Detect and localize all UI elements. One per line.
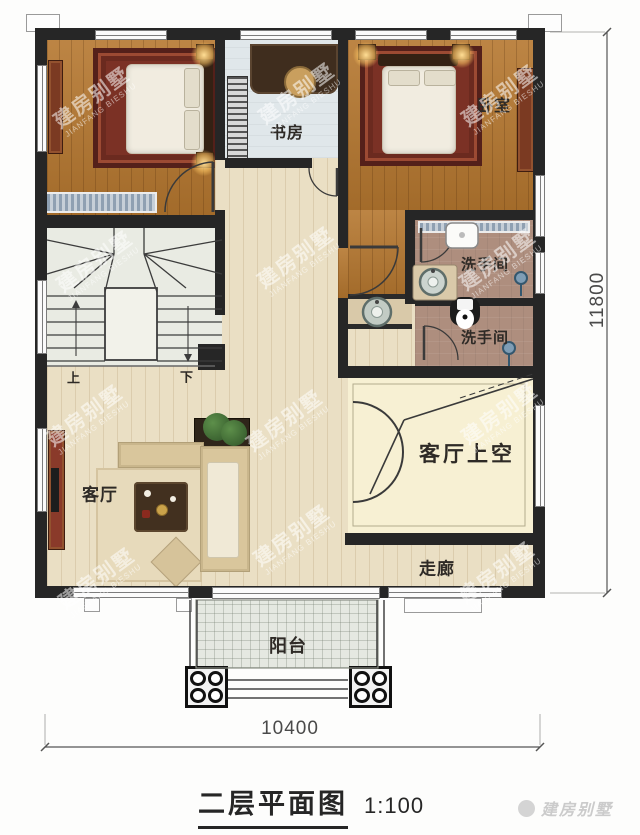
bedroom-right-wardrobe: [517, 68, 534, 172]
bedroom-vestibule-floor: [348, 210, 405, 298]
room-label-bedroom: 卧室: [477, 92, 511, 116]
room-label-corridor: 走廊: [419, 555, 455, 580]
window: [355, 30, 427, 40]
room-label-washroom-upper: 洗手间: [461, 254, 509, 275]
dimension-vertical: 11800: [587, 272, 609, 328]
wall: [215, 210, 225, 315]
wall: [405, 210, 533, 220]
sofa-seat: [207, 462, 239, 558]
wall: [47, 215, 225, 228]
wall: [338, 168, 348, 248]
room-label-living: 客厅: [82, 481, 118, 506]
corner-watermark-text: 建房别墅: [541, 796, 613, 820]
bedroom-left-door-gap: [215, 160, 225, 210]
watermark-logo-icon: [518, 800, 535, 817]
window: [73, 587, 189, 598]
wall: [225, 158, 312, 168]
cup-icon: [144, 490, 151, 497]
bedroom-left-tv-cabinet: [48, 60, 63, 154]
wall: [345, 533, 533, 545]
balcony-column-base: [349, 666, 392, 708]
window: [240, 30, 332, 40]
window: [95, 30, 167, 40]
wall: [415, 298, 533, 306]
window: [37, 280, 47, 354]
window: [535, 405, 545, 507]
sofa-chaise: [118, 442, 204, 468]
tv-screen: [51, 468, 59, 512]
study-chair: [284, 66, 316, 98]
room-label-living-void: 客厅上空: [419, 438, 515, 468]
window: [37, 65, 47, 152]
bedroom-left-pillow: [184, 110, 200, 150]
corner-watermark: 建房别墅: [518, 796, 613, 820]
lamp-glow: [191, 150, 217, 176]
bedroom-door-gap: [338, 248, 348, 298]
bedroom-right-pillow: [388, 70, 420, 86]
plant-icon: [221, 420, 247, 446]
wall: [345, 366, 533, 378]
bedroom-left-closet: [45, 192, 157, 213]
basin-alcove: [348, 294, 412, 329]
window: [388, 587, 502, 598]
title-scale: 1:100: [364, 793, 424, 819]
window: [450, 30, 517, 40]
title-text: 二层平面图: [198, 782, 348, 829]
window: [535, 175, 545, 237]
floor-plan: 书房 卧室 洗手间 洗手间 客厅 客厅上空 走廊 阳台 上 下 10400 11…: [0, 0, 640, 835]
bedroom-right-pillow: [424, 70, 456, 86]
dimension-horizontal: 10400: [261, 718, 319, 740]
bedroom-left-pillow: [184, 68, 200, 108]
entry-step: [404, 598, 482, 613]
table-decor-red: [142, 510, 150, 518]
table-decor: [156, 504, 168, 516]
balcony-column-base: [185, 666, 228, 708]
stairs-up-label: 上: [67, 368, 81, 387]
window: [37, 428, 47, 512]
lamp-glow: [353, 42, 379, 68]
wall: [533, 28, 545, 598]
stairs-down-label: 下: [180, 367, 194, 386]
pilaster-cap: [176, 598, 192, 612]
lamp-glow: [191, 42, 217, 68]
coffee-table: [134, 482, 188, 532]
drawing-title: 二层平面图 1:100: [198, 782, 424, 829]
cup-icon: [170, 496, 176, 502]
pilaster-cap: [84, 598, 100, 612]
wall: [215, 40, 225, 160]
wall: [338, 40, 348, 168]
room-label-study: 书房: [270, 119, 304, 143]
bedroom-right-headboard: [378, 54, 458, 66]
room-label-washroom-lower: 洗手间: [461, 327, 509, 348]
lamp-glow: [449, 42, 475, 68]
study-bookshelf: [227, 76, 248, 162]
window: [535, 252, 545, 294]
washroom-counter: [418, 221, 530, 233]
room-label-balcony: 阳台: [269, 632, 307, 658]
wall: [198, 344, 225, 370]
stairwell-floor: [47, 228, 222, 366]
wall: [405, 218, 415, 304]
balcony-door: [212, 587, 380, 599]
